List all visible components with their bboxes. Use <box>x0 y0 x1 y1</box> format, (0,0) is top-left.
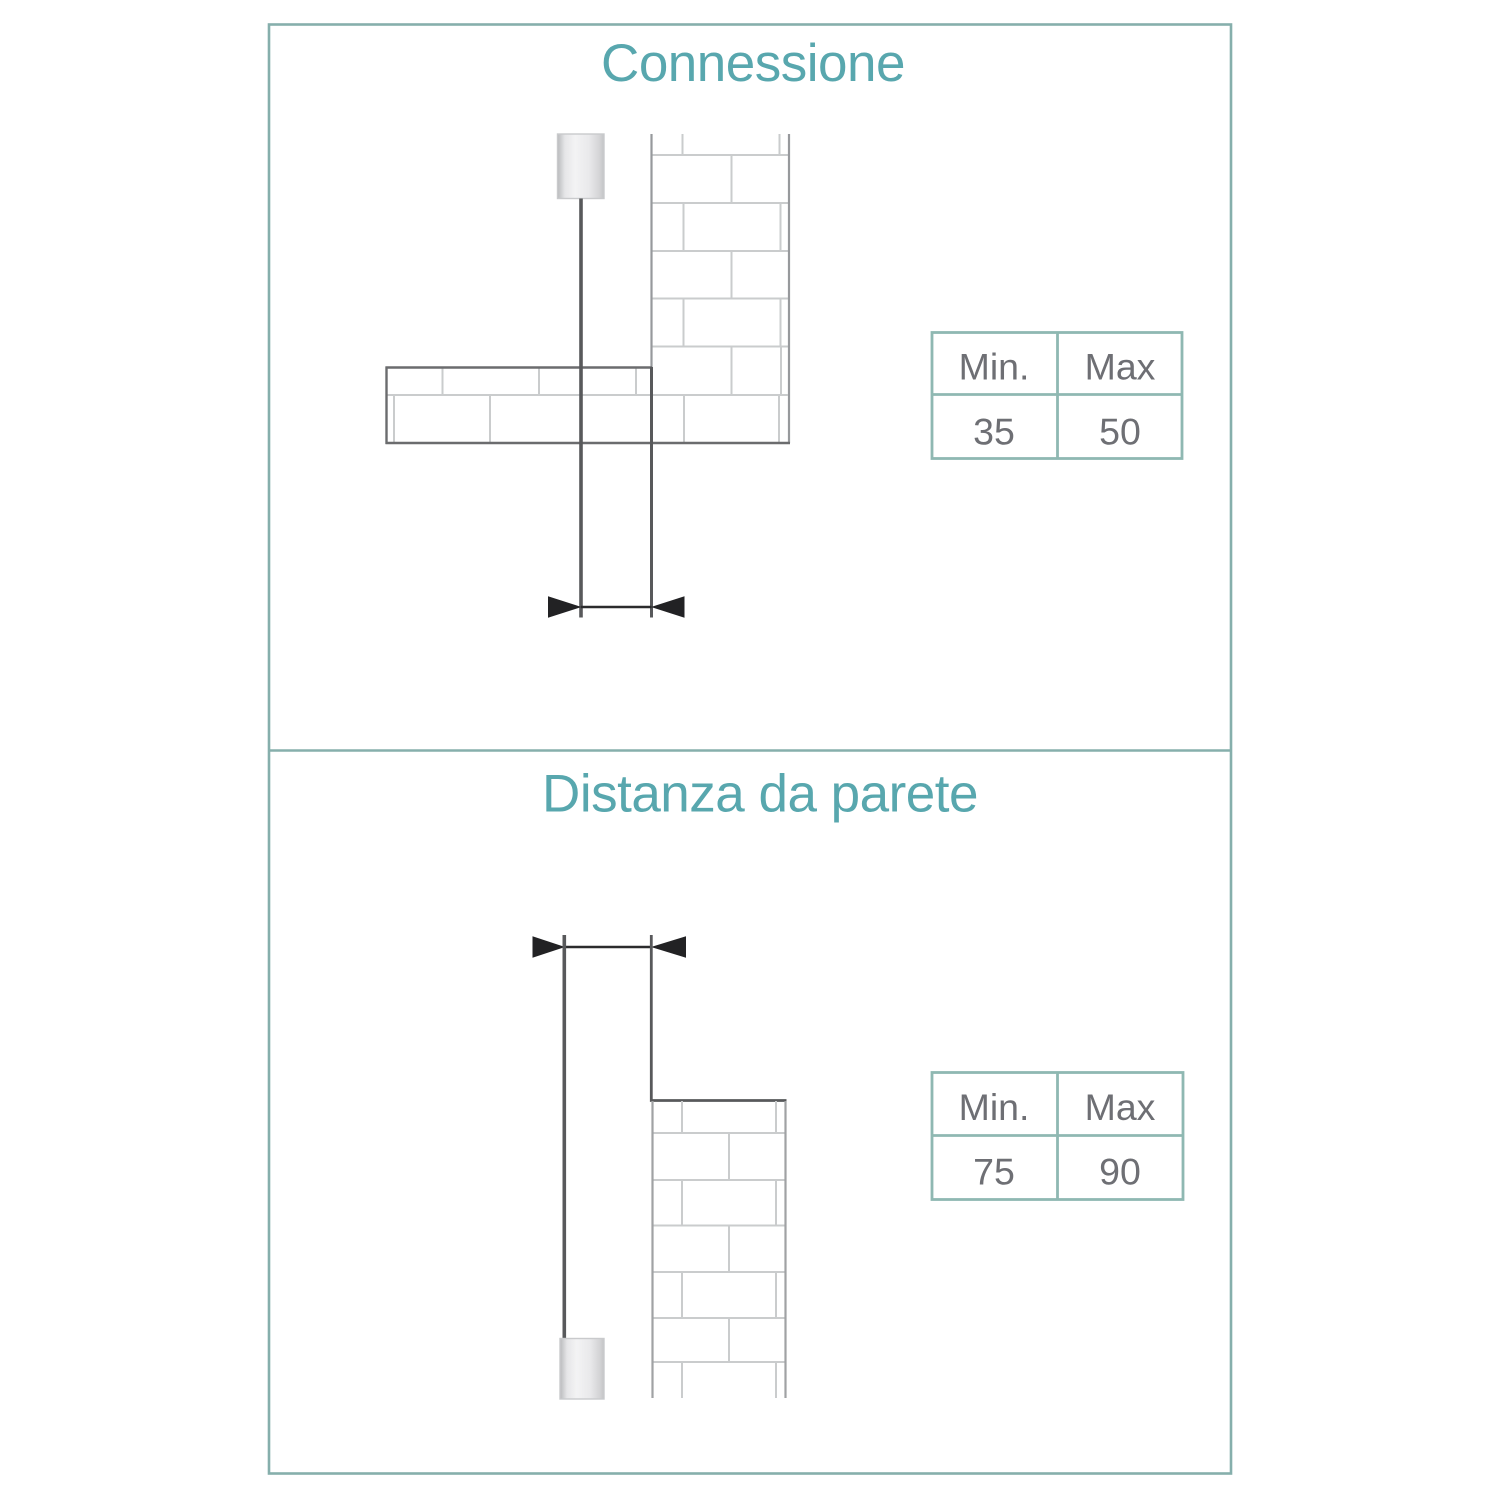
svg-text:50: 50 <box>1099 411 1141 453</box>
svg-text:75: 75 <box>973 1151 1015 1193</box>
svg-text:Min.: Min. <box>959 346 1030 388</box>
svg-text:90: 90 <box>1099 1151 1141 1193</box>
svg-text:Max: Max <box>1085 346 1156 388</box>
svg-text:Distanza da parete: Distanza da parete <box>542 765 978 824</box>
svg-text:Connessione: Connessione <box>601 34 905 93</box>
svg-text:Min.: Min. <box>959 1086 1030 1128</box>
svg-text:Max: Max <box>1085 1086 1156 1128</box>
svg-text:35: 35 <box>973 411 1015 453</box>
